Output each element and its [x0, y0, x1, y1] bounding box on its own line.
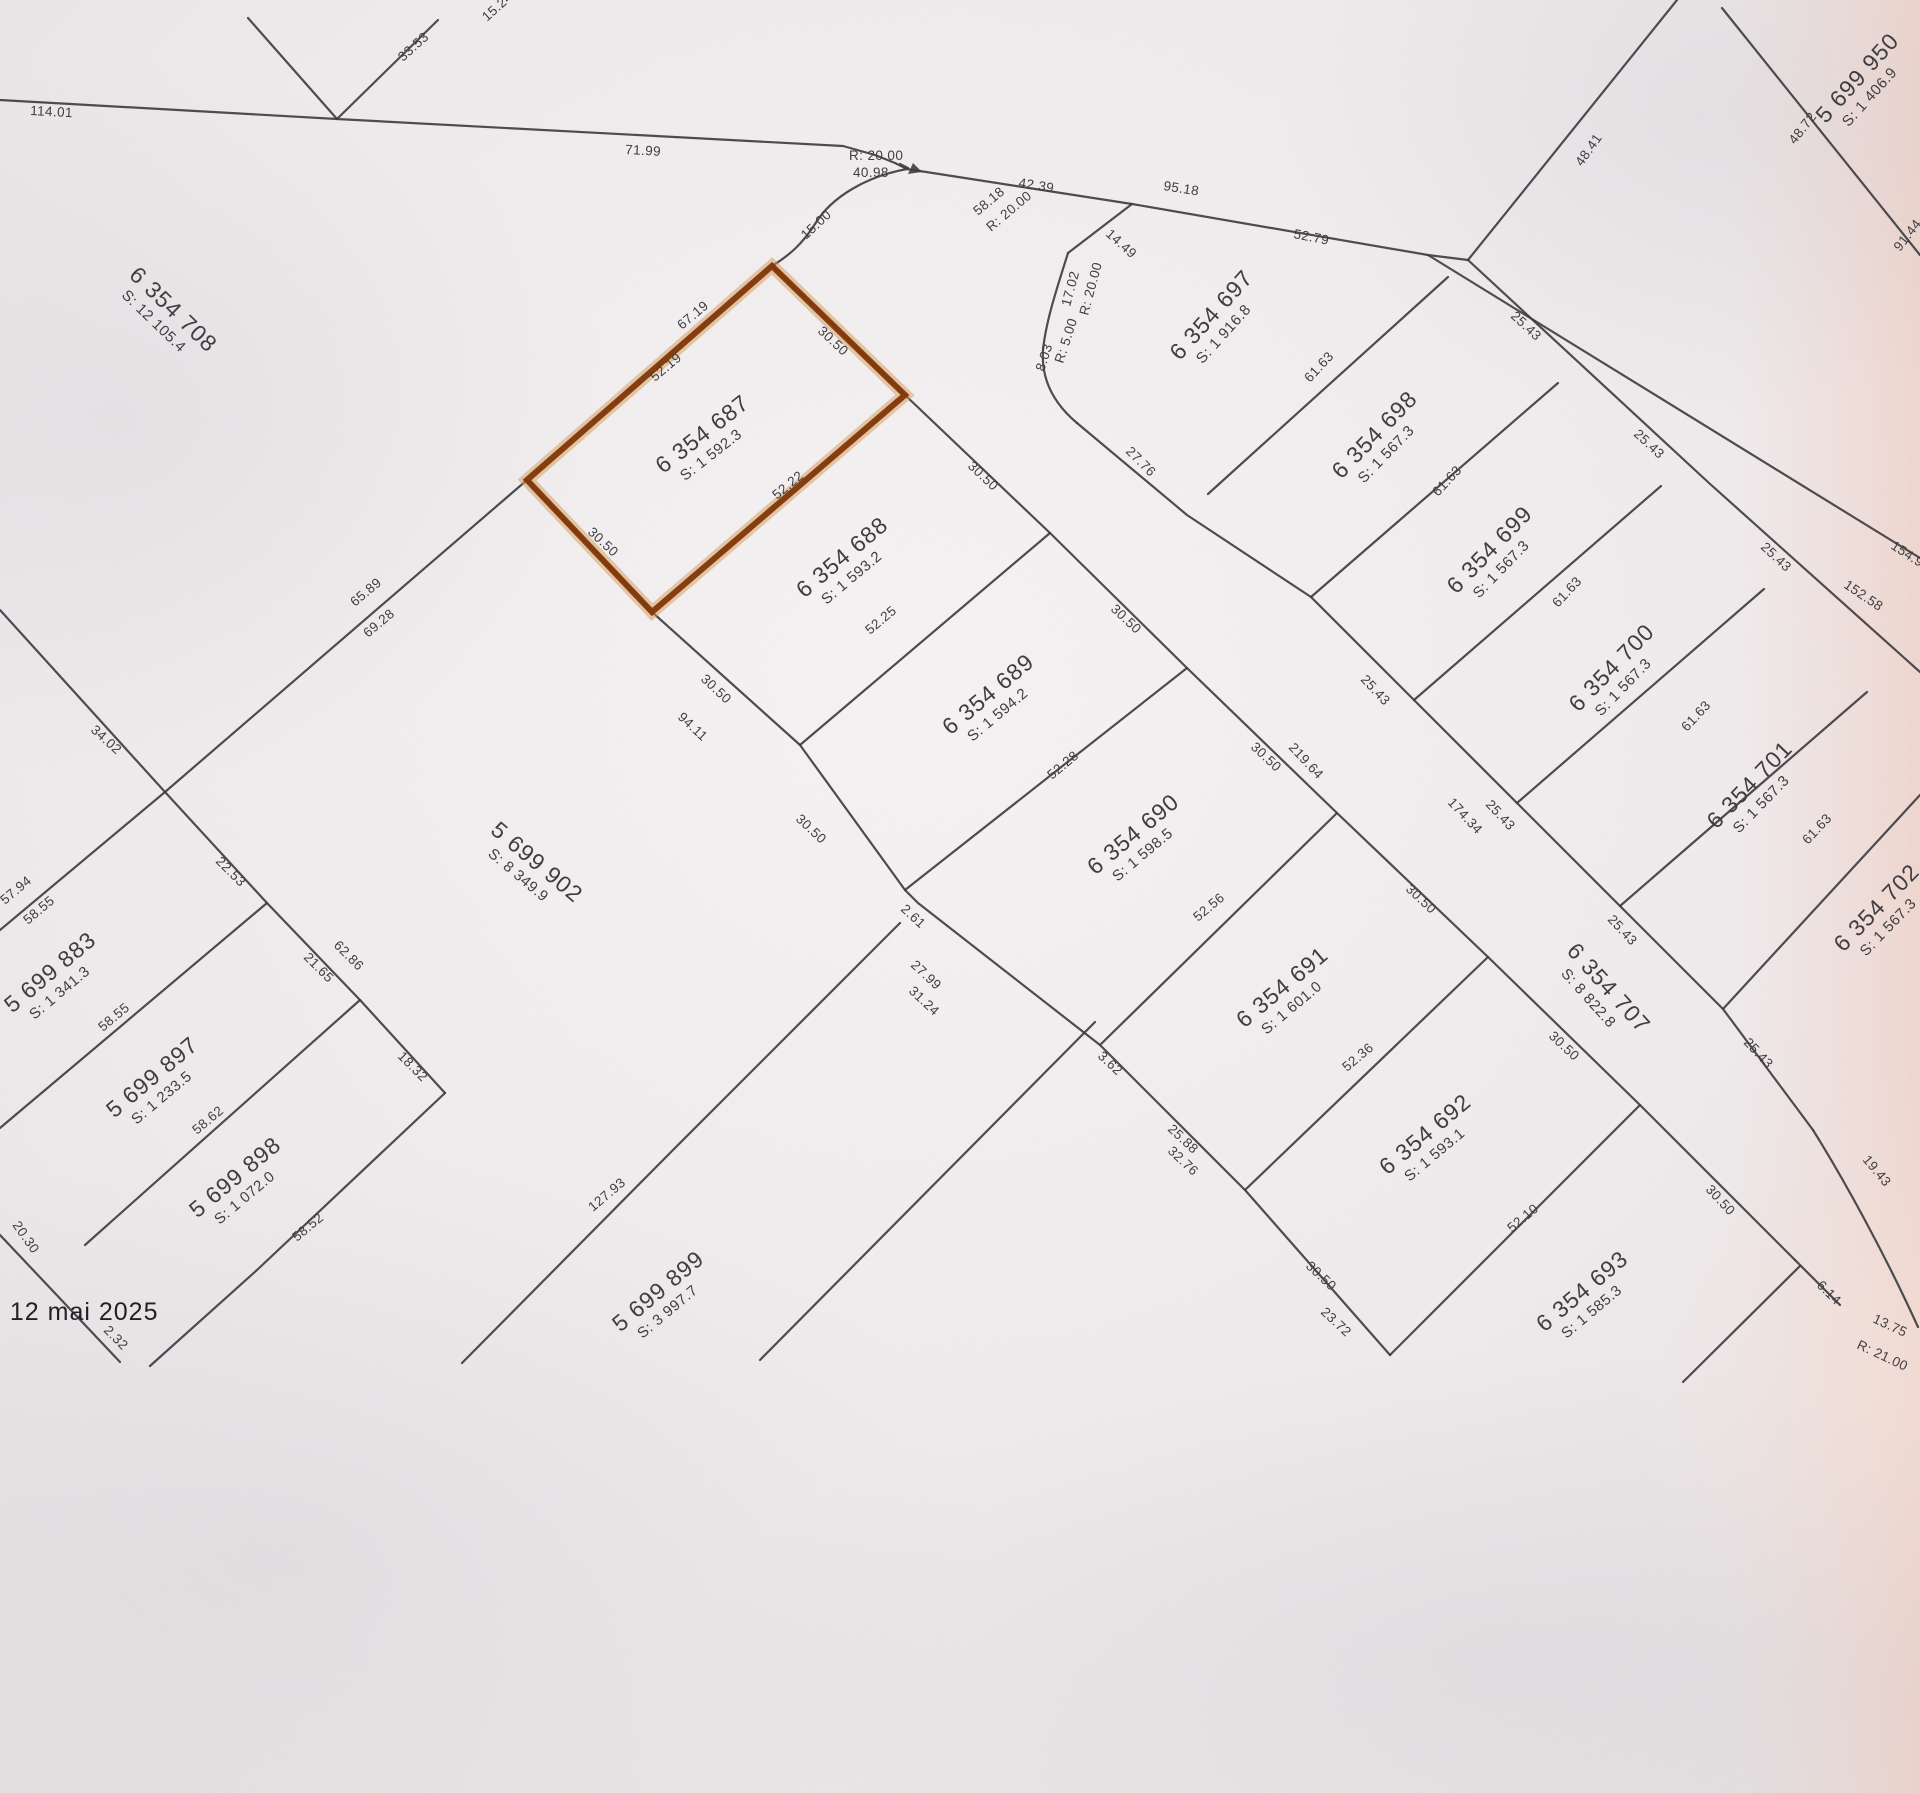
cadastral-map: 6 354 708S: 12 105.46 354 687S: 1 592.36… [0, 0, 1920, 1793]
cadastral-map-photo: 6 354 708S: 12 105.46 354 687S: 1 592.36… [0, 0, 1920, 1793]
paper-grain-texture [0, 0, 1920, 1793]
